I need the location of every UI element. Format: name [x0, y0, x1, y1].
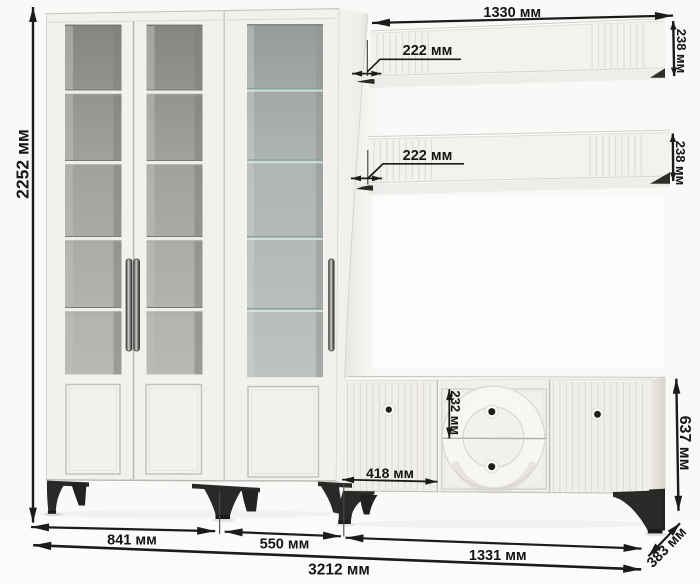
svg-text:418 мм: 418 мм: [366, 465, 414, 481]
svg-text:550 мм: 550 мм: [260, 537, 310, 553]
svg-text:1330 мм: 1330 мм: [483, 5, 541, 21]
svg-text:222 мм: 222 мм: [403, 43, 453, 59]
svg-text:238 мм: 238 мм: [674, 29, 689, 74]
svg-text:637 мм: 637 мм: [676, 416, 693, 471]
svg-text:1331 мм: 1331 мм: [469, 548, 527, 564]
svg-text:238 мм: 238 мм: [673, 141, 688, 186]
svg-text:222 мм: 222 мм: [403, 148, 453, 164]
svg-text:841 мм: 841 мм: [107, 532, 157, 548]
svg-text:3212 мм: 3212 мм: [308, 562, 370, 579]
svg-text:2252 мм: 2252 мм: [13, 129, 33, 199]
svg-text:232 мм: 232 мм: [448, 390, 463, 435]
